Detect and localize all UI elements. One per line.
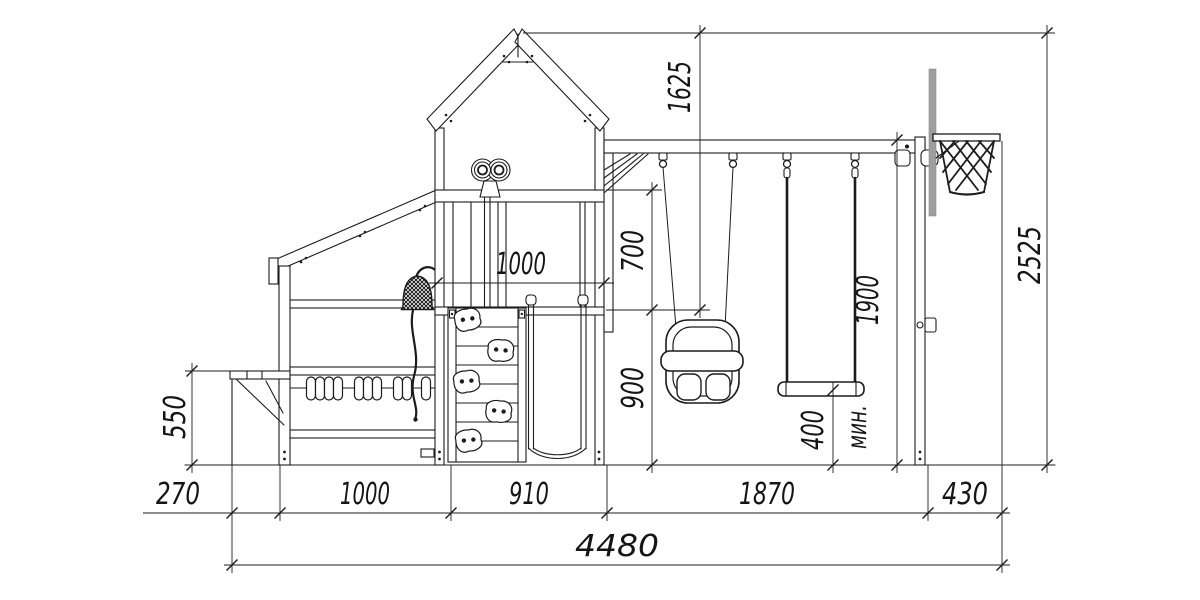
playground-elevation-drawing: 1625 700 900 1900 400 мин. 2525 550 1000…	[0, 0, 1200, 600]
climbing-hold	[485, 399, 513, 424]
dim-seat-clearance-note: мин.	[842, 405, 873, 449]
dim-hoop-overhang: 430	[942, 477, 988, 512]
climbing-wall	[448, 307, 526, 462]
climbing-hold	[453, 370, 481, 394]
dim-seat-clearance: 400	[796, 410, 831, 450]
dim-platform-width: 1000	[496, 247, 546, 282]
dim-table-depth: 270	[156, 477, 200, 512]
lower-rail	[290, 430, 436, 438]
dim-peak-to-platform: 1625	[663, 61, 698, 113]
dim-table-height: 550	[158, 395, 193, 439]
dim-overall-height: 2525	[1013, 226, 1048, 284]
baby-seat-bar	[661, 351, 743, 371]
drawing-sheet: 1625 700 900 1900 400 мин. 2525 550 1000…	[0, 0, 1200, 600]
dim-overall-length: 4480	[575, 529, 659, 564]
tower-right-post	[595, 128, 604, 465]
dim-tower-length: 910	[509, 477, 549, 512]
annex-post	[279, 266, 290, 465]
swing-seat	[778, 382, 864, 396]
tower-left-post	[435, 128, 444, 465]
basketball-pole	[929, 69, 936, 216]
dim-annex-length: 1000	[340, 477, 390, 512]
dim-swing-bay-length: 1870	[739, 477, 795, 512]
dim-beam-height: 1900	[851, 275, 886, 325]
dim-platform-height: 900	[616, 367, 651, 409]
dim-guardrail-height: 700	[616, 230, 651, 272]
climbing-hold	[487, 338, 515, 363]
basketball-rim	[933, 134, 1000, 141]
